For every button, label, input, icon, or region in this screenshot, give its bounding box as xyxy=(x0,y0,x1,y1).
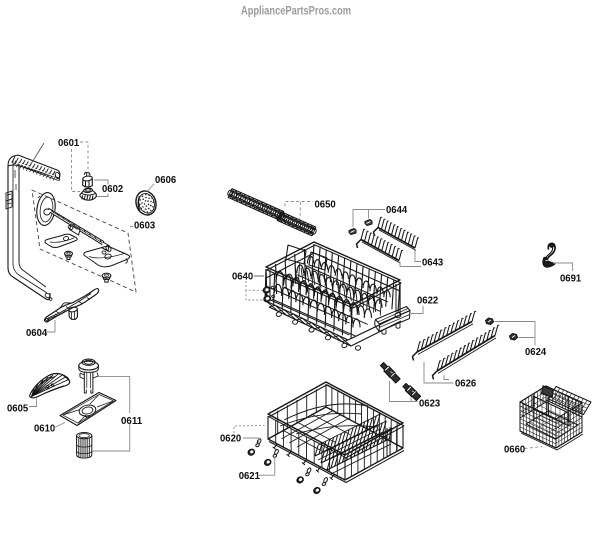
svg-text:0601: 0601 xyxy=(58,137,79,149)
svg-text:0626: 0626 xyxy=(455,378,476,390)
svg-text:0610: 0610 xyxy=(34,423,55,435)
svg-text:0605: 0605 xyxy=(7,403,28,415)
svg-text:AppliancePartsPros.com: AppliancePartsPros.com xyxy=(241,6,351,18)
svg-text:0660: 0660 xyxy=(504,444,525,456)
svg-text:0640: 0640 xyxy=(232,271,253,283)
svg-text:0621: 0621 xyxy=(239,470,260,482)
svg-text:0622: 0622 xyxy=(417,295,438,307)
svg-text:0620: 0620 xyxy=(220,433,241,445)
svg-text:0650: 0650 xyxy=(315,199,336,211)
svg-text:0624: 0624 xyxy=(525,346,546,358)
svg-text:0604: 0604 xyxy=(26,327,47,339)
svg-text:0623: 0623 xyxy=(419,398,440,410)
svg-text:0606: 0606 xyxy=(155,174,176,186)
svg-text:0643: 0643 xyxy=(422,257,443,269)
svg-text:0602: 0602 xyxy=(102,183,123,195)
svg-text:0611: 0611 xyxy=(121,415,142,427)
svg-text:0644: 0644 xyxy=(386,204,407,216)
svg-text:0603: 0603 xyxy=(134,220,155,232)
svg-text:0691: 0691 xyxy=(560,273,581,285)
